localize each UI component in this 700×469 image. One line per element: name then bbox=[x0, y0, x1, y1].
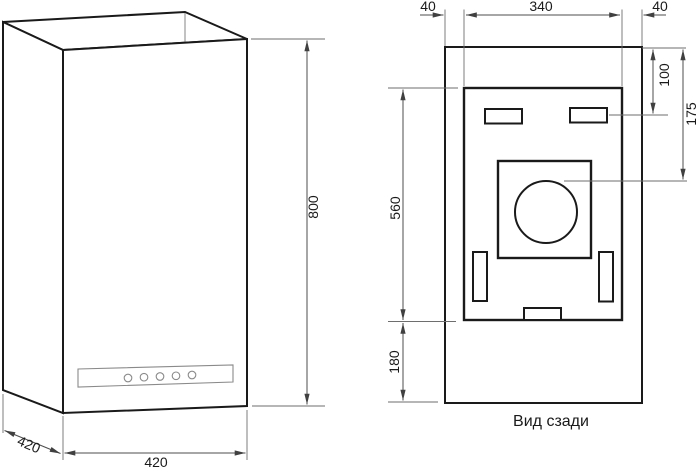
technical-drawing-canvas: 800 420 420 40 340 40 bbox=[0, 0, 700, 469]
dim-label-depth: 420 bbox=[15, 432, 43, 456]
panel-button-icon bbox=[140, 373, 148, 381]
dim-label-fan-offset: 175 bbox=[683, 102, 699, 126]
vent-slot-left bbox=[473, 252, 487, 301]
dim-label-slot-offset: 100 bbox=[656, 63, 672, 87]
dim-label-inner-width: 340 bbox=[529, 0, 553, 14]
dim-label-height: 800 bbox=[305, 195, 321, 219]
dimension-drawing: 800 420 420 40 340 40 bbox=[0, 0, 700, 469]
cabinet-left-face bbox=[3, 22, 63, 413]
isometric-view: 800 420 420 bbox=[3, 12, 325, 469]
view-caption: Вид сзади bbox=[513, 413, 589, 430]
dim-label-bottom-offset: 180 bbox=[386, 350, 402, 374]
dim-label-plate-height: 560 bbox=[387, 196, 403, 220]
fan-opening bbox=[515, 181, 577, 243]
panel-button-icon bbox=[156, 373, 164, 381]
cabinet-front-face bbox=[63, 39, 247, 413]
panel-button-icon bbox=[172, 372, 180, 380]
keyhole-slot-left bbox=[485, 109, 522, 124]
dim-label-margin-left: 40 bbox=[420, 0, 436, 14]
bottom-tab bbox=[524, 308, 561, 320]
dim-label-margin-right: 40 bbox=[652, 0, 668, 14]
rear-view: 40 340 40 100 175 560 180 Вид сзади bbox=[386, 0, 699, 430]
panel-button-icon bbox=[124, 374, 132, 382]
dim-label-width: 420 bbox=[144, 454, 168, 469]
vent-slot-right bbox=[599, 252, 613, 302]
keyhole-slot-right bbox=[570, 108, 607, 123]
panel-button-icon bbox=[188, 371, 196, 379]
